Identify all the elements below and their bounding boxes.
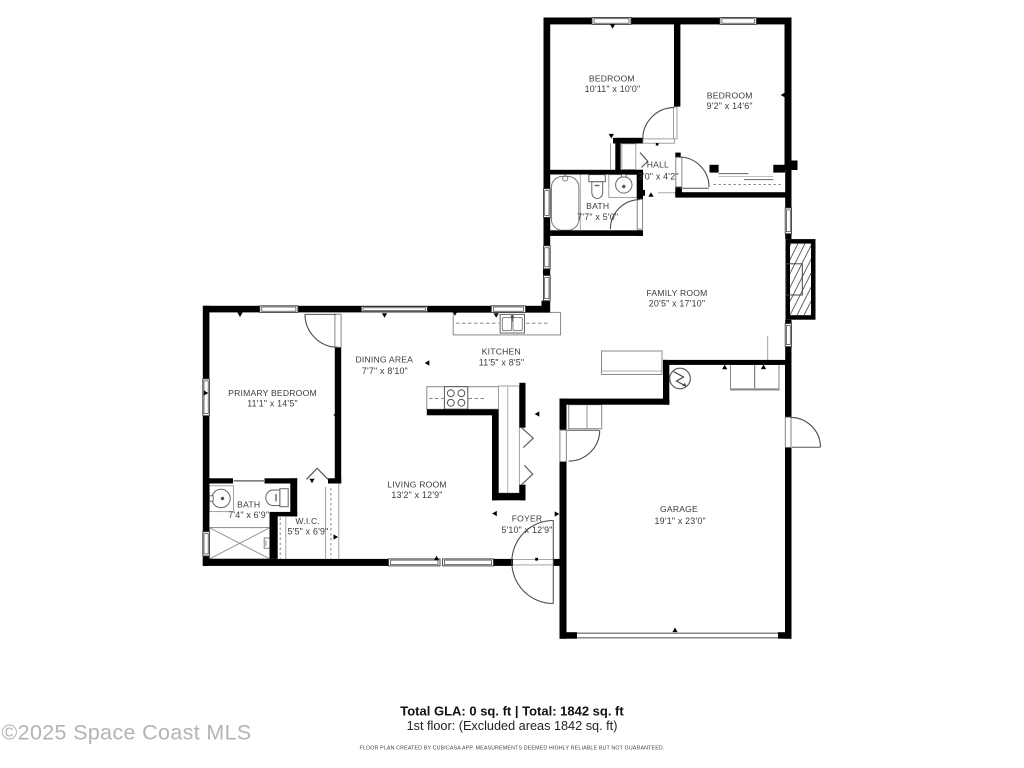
svg-text:3'0" x 4'2": 3'0" x 4'2": [638, 172, 679, 182]
svg-text:7'7" x 5'0": 7'7" x 5'0": [577, 212, 618, 222]
svg-text:7'7" x 8'10": 7'7" x 8'10": [362, 366, 408, 376]
svg-text:5'5" x 6'9": 5'5" x 6'9": [287, 526, 328, 536]
svg-text:HALL: HALL: [647, 159, 669, 169]
svg-text:DINING AREA: DINING AREA: [356, 354, 414, 364]
svg-text:20'5" x 17'10": 20'5" x 17'10": [649, 299, 705, 309]
svg-text:9'2" x 14'6": 9'2" x 14'6": [707, 101, 753, 111]
svg-text:FLOOR PLAN CREATED BY CUBICASA: FLOOR PLAN CREATED BY CUBICASA APP. MEAS…: [360, 745, 665, 751]
svg-text:LIVING ROOM: LIVING ROOM: [387, 479, 447, 489]
svg-text:11'1" x 14'5": 11'1" x 14'5": [247, 399, 298, 409]
svg-text:FAMILY ROOM: FAMILY ROOM: [646, 288, 707, 298]
svg-text:©2025 Space Coast MLS: ©2025 Space Coast MLS: [2, 721, 252, 745]
svg-text:FOYER: FOYER: [512, 514, 543, 524]
svg-text:BATH: BATH: [586, 201, 609, 211]
svg-text:7'4" x 6'9": 7'4" x 6'9": [228, 510, 269, 520]
svg-text:19'1" x 23'0": 19'1" x 23'0": [655, 516, 706, 526]
svg-text:KITCHEN: KITCHEN: [482, 346, 521, 356]
svg-text:BATH: BATH: [237, 499, 260, 509]
svg-text:W.I.C.: W.I.C.: [295, 516, 320, 526]
svg-text:PRIMARY BEDROOM: PRIMARY BEDROOM: [228, 388, 317, 398]
svg-text:BEDROOM: BEDROOM: [589, 73, 635, 83]
svg-text:BEDROOM: BEDROOM: [707, 90, 753, 100]
svg-text:10'11" x 10'0": 10'11" x 10'0": [585, 84, 641, 94]
svg-text:5'10" x 12'9": 5'10" x 12'9": [501, 525, 552, 535]
svg-text:13'2" x 12'9": 13'2" x 12'9": [391, 490, 442, 500]
svg-text:GARAGE: GARAGE: [660, 504, 698, 514]
svg-text:Total GLA: 0 sq. ft | Total: 1: Total GLA: 0 sq. ft | Total: 1842 sq. ft: [400, 704, 624, 719]
svg-text:1st floor: (Excluded areas 184: 1st floor: (Excluded areas 1842 sq. ft): [407, 719, 618, 733]
svg-text:11'5" x 8'5": 11'5" x 8'5": [479, 358, 524, 368]
